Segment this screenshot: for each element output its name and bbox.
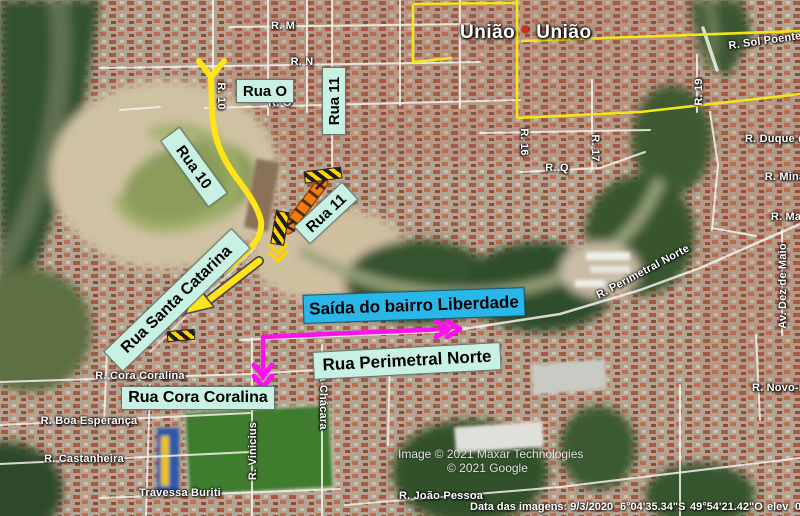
callout-rua-santa-catarina: Rua Santa Catarina	[103, 228, 250, 372]
hatch-marker	[270, 210, 290, 246]
road-label-duque: R. Duque d	[745, 133, 800, 145]
road-label-boa-esperanca: R. Boa Esperança	[41, 415, 138, 427]
road-label-r16: R. 16	[518, 128, 530, 155]
callout-rua-perimetral-norte: Rua Perimetral Norte	[312, 342, 501, 380]
road-label-ma: R. Ma	[771, 211, 800, 223]
road-label-rn: R. N	[291, 56, 314, 68]
yellow-chevron-marker	[270, 253, 286, 261]
google-credit: © 2021 Google	[447, 461, 528, 475]
place-label-uniao: União União	[460, 22, 592, 44]
route-start-chevron	[199, 61, 224, 77]
hatch-marker	[167, 329, 196, 342]
road-label-perimetral-norte: R. Perimetral Norte	[595, 242, 692, 301]
sand-clearing	[50, 80, 280, 270]
elevation-value: 0	[795, 501, 800, 513]
place-name: União	[460, 22, 515, 44]
bleachers	[157, 428, 179, 494]
yellow-chevron-marker	[270, 245, 286, 253]
mapped-roads-yellow	[413, 0, 800, 118]
river	[0, 0, 61, 268]
longitude-readout: 49°54'21.42"O	[690, 501, 763, 513]
road-label-novo: R. Novo-I	[752, 382, 800, 394]
road-label-mina: R. Mina	[765, 171, 800, 183]
road-label-castanheira: R. Castanheira	[44, 453, 124, 465]
latitude-readout: 6°04'35.34"S	[620, 501, 685, 513]
callout-rua-cora-coralina: Rua Cora Coralina	[121, 386, 275, 410]
road-label-rm: R. M	[271, 20, 295, 32]
callout-rua-10: Rua 10	[160, 127, 228, 207]
imagery-date: Data das imagens: 9/3/2020	[470, 501, 613, 513]
road-label-travessa-buriti: Travessa Buriti	[139, 487, 221, 499]
road-label-r17: R. 17	[589, 134, 601, 161]
imagery-credit: Image © 2021 Maxar Technologies	[398, 447, 583, 461]
riverside-forest	[0, 0, 100, 300]
callout-rua-o: Rua O	[236, 79, 294, 103]
terrain-vegetation	[0, 0, 755, 516]
magenta-arrow-right	[447, 321, 460, 337]
callout-rua-11-diagonal: Rua 11	[294, 182, 359, 245]
hatch-marker	[303, 166, 342, 183]
road-label-rq: R. Q	[545, 162, 568, 174]
place-name: União	[536, 22, 591, 44]
callout-saida-bairro-liberdade: Saída do bairro Liberdade	[303, 287, 526, 324]
soccer-field	[184, 404, 334, 496]
bridge	[703, 28, 717, 70]
road-label-vinicius: R. Vinicius	[247, 422, 259, 480]
road-label-dez-de-maio: Av. Dez de Maio	[777, 243, 789, 329]
road-label-r10: R. 10	[215, 82, 227, 109]
road-label-r19: R. 19	[693, 78, 705, 105]
magenta-arrow-right	[436, 321, 449, 337]
map-viewport[interactable]: R. M R. N R. O R. Q R. 10 R. 16 R. 17 R.…	[0, 0, 800, 516]
place-marker-dot	[522, 26, 529, 33]
magenta-arrow-down	[254, 365, 272, 376]
callout-rua-11-vertical: Rua 11	[322, 67, 346, 135]
road-label-cora-coralina: R. Cora Coralina	[95, 370, 184, 382]
buildings-detail	[157, 158, 630, 495]
elevation-label: elev	[767, 501, 788, 513]
road-label-sol-poente: R. Sol Poente	[728, 30, 800, 52]
